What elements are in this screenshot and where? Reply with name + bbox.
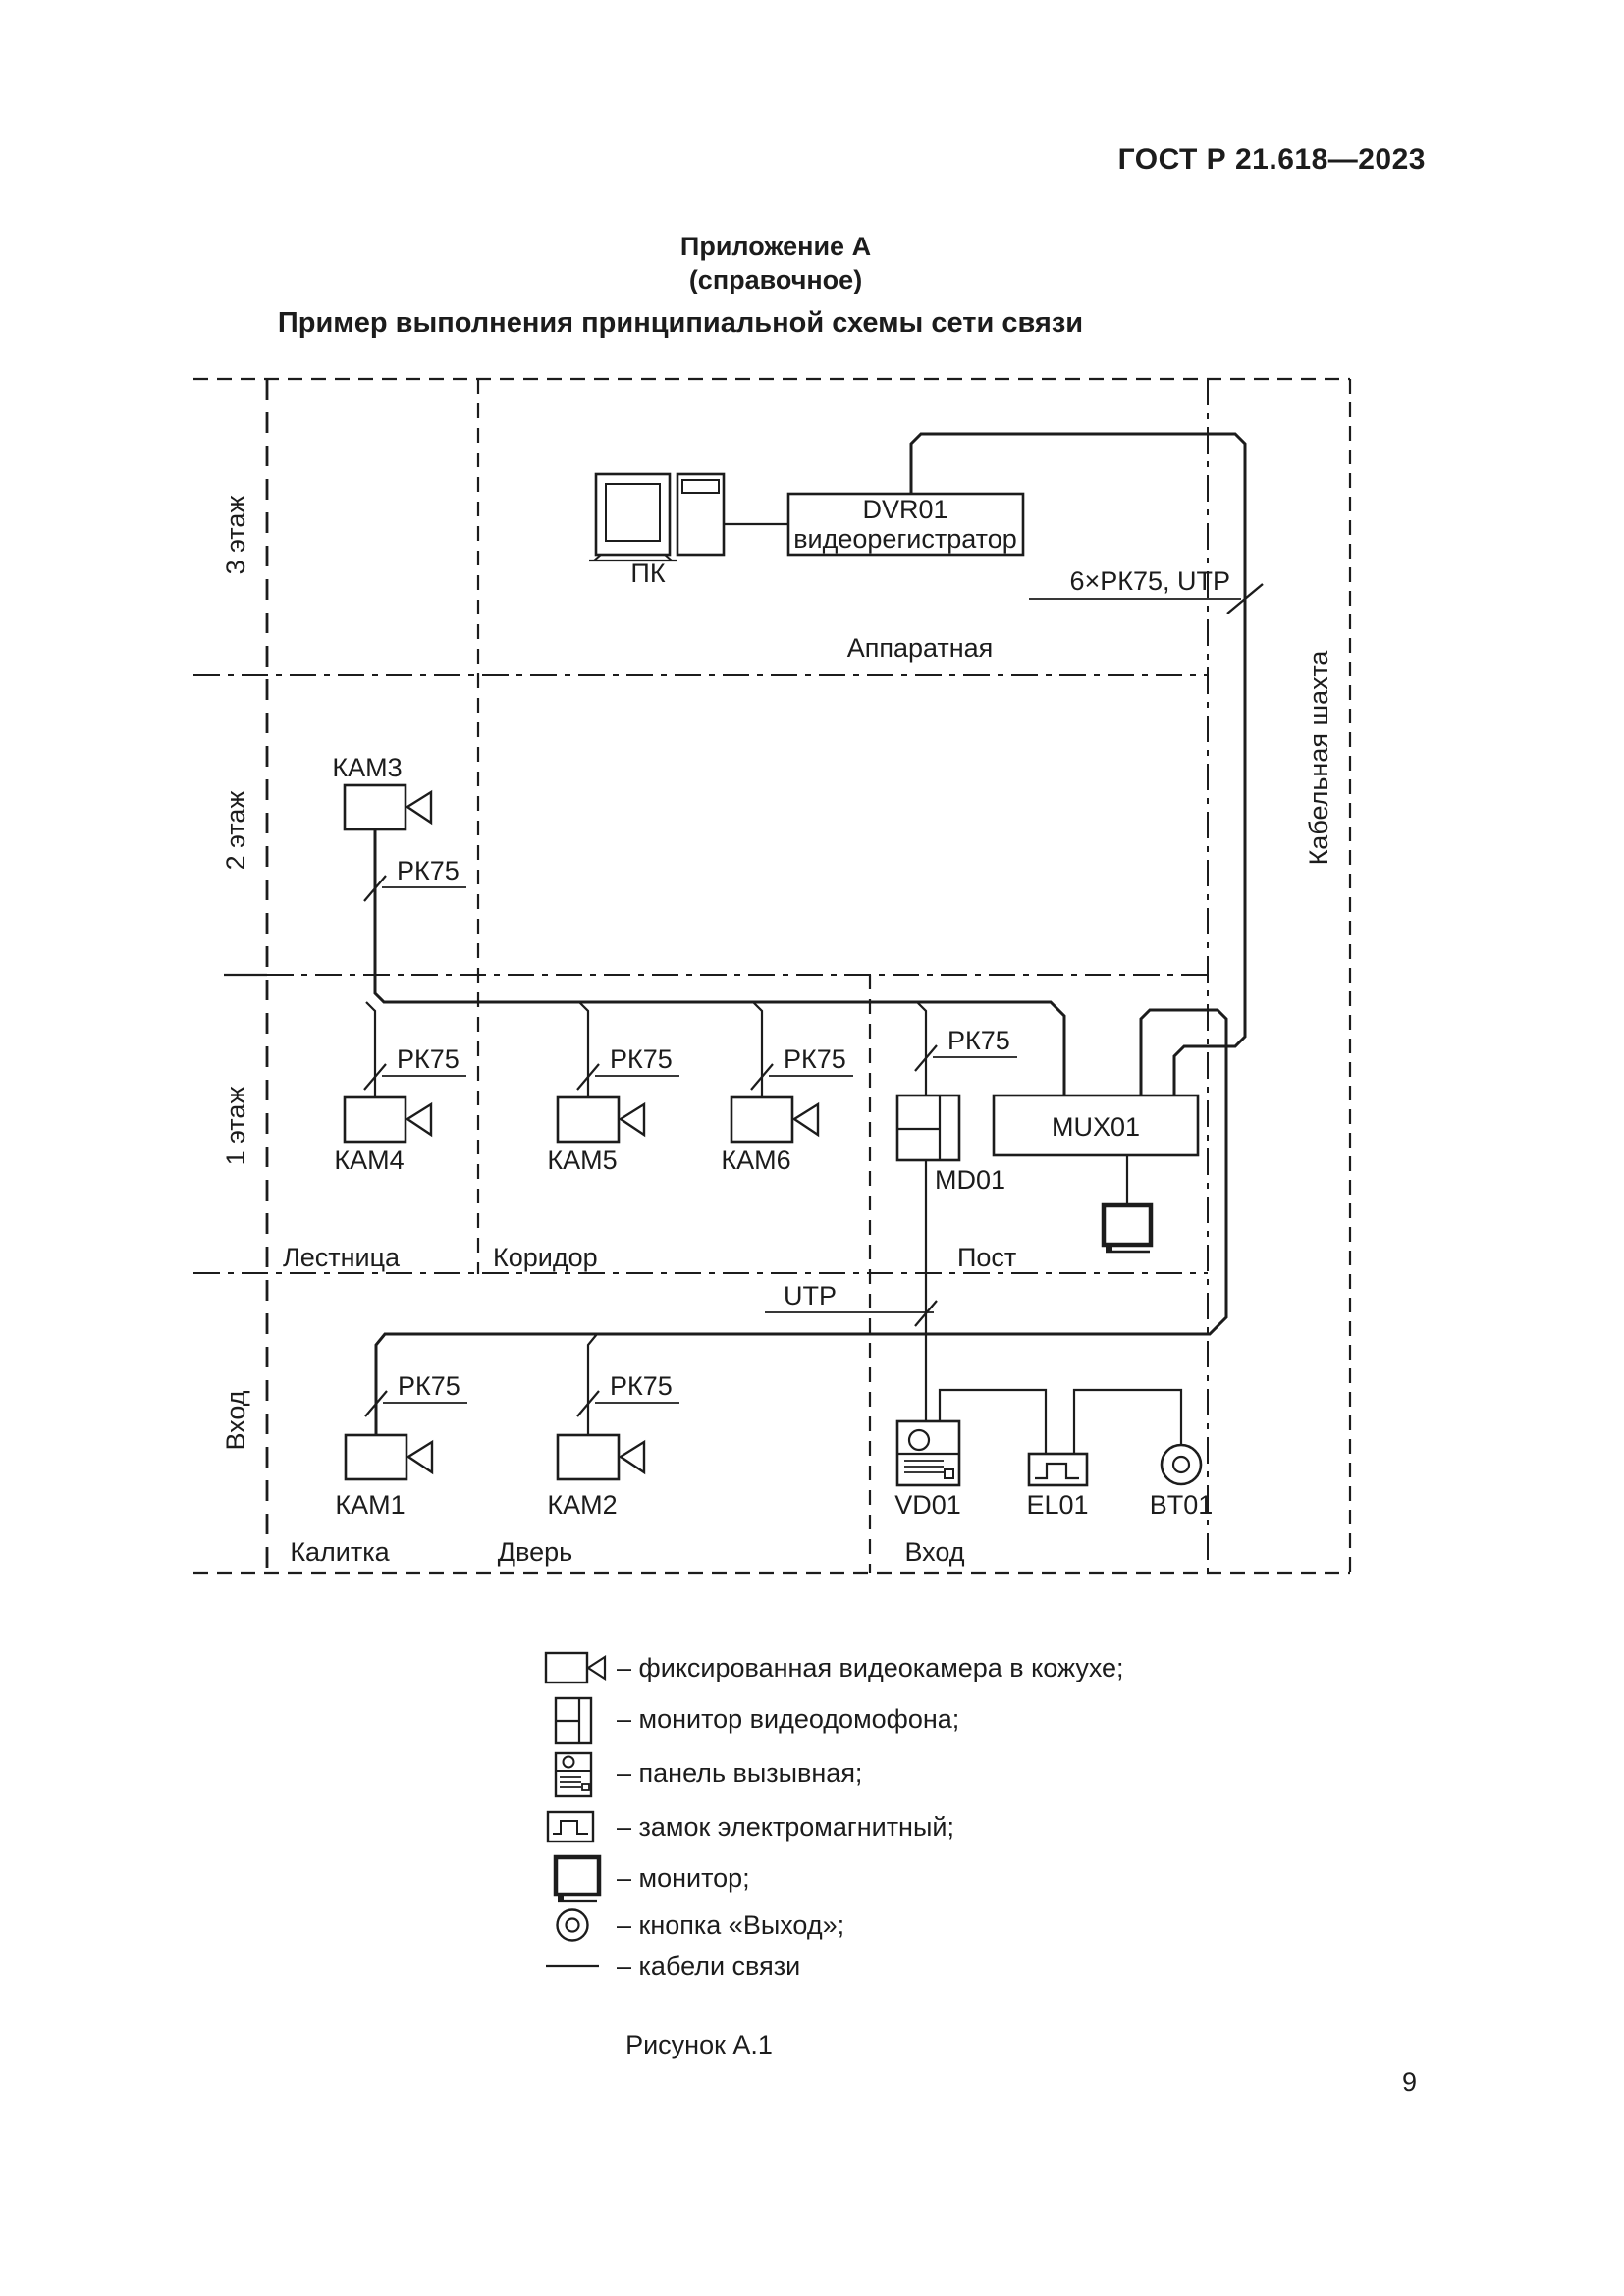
cable-label-rk75-kam6: РК75 (784, 1044, 846, 1074)
document-page: ГОСТ Р 21.618—2023 Приложение А (справоч… (0, 0, 1624, 2296)
legend-label-7: – кабели связи (617, 1951, 800, 1981)
dvr-name: DVR01 (862, 495, 947, 524)
cable-riser-kam2 (588, 1334, 597, 1435)
vd01-button (945, 1469, 953, 1478)
camera-kam2-icon (558, 1435, 644, 1479)
mux-label: MUX01 (1052, 1112, 1140, 1142)
md01-intercom-monitor-icon (897, 1095, 959, 1160)
camera-kam1-icon (346, 1435, 432, 1479)
legend-label-6: – кнопка «Выход»; (617, 1910, 844, 1940)
floor-label-entrance: Вход (221, 1390, 250, 1450)
bt01-inner (1173, 1457, 1189, 1472)
post-monitor-icon (1104, 1205, 1151, 1253)
intercom-monitor-icon (556, 1698, 591, 1743)
camera-kam5-icon (558, 1097, 644, 1142)
post-monitor-foot (1106, 1246, 1112, 1253)
legend-label-2: – монитор видеодомофона; (617, 1704, 959, 1734)
el01-lock-icon (1029, 1454, 1087, 1485)
pc-tower-slot (682, 480, 719, 493)
cable-el01-bt01 (1074, 1390, 1181, 1454)
legend-label-3: – панель вызывная; (617, 1758, 862, 1788)
cable-shaft-label: Кабельная шахта (1304, 650, 1333, 866)
room-door: Дверь (498, 1537, 572, 1567)
fixed-camera-icon (546, 1653, 605, 1682)
dvr-type: видеорегистратор (793, 524, 1017, 554)
room-gate: Калитка (290, 1537, 390, 1567)
camera-kam6-icon (731, 1097, 818, 1142)
kam3-label: КАМ3 (332, 753, 402, 782)
room-stairs: Лестница (283, 1243, 401, 1272)
pc-screen (606, 484, 660, 541)
room-entrance: Вход (904, 1537, 964, 1567)
el01-label: EL01 (1026, 1490, 1088, 1520)
electromagnetic-lock-icon (548, 1812, 593, 1842)
cable-label-rk75-kam4: РК75 (397, 1044, 460, 1074)
cable-label-trunk: 6×РК75, UTP (1069, 566, 1230, 596)
kam1-label: КАМ1 (335, 1490, 405, 1520)
camera-kam4-icon (345, 1097, 431, 1142)
kam4-label: КАМ4 (334, 1146, 404, 1175)
kam6-label: КАМ6 (721, 1146, 790, 1175)
kam5-label: КАМ5 (547, 1146, 617, 1175)
vd01-label: VD01 (894, 1490, 961, 1520)
el01-body (1029, 1454, 1087, 1485)
call-panel-icon (556, 1753, 591, 1796)
cable-label-rk75-kam2: РК75 (610, 1371, 673, 1401)
exit-button-icon (558, 1910, 588, 1941)
pc-icon (589, 474, 724, 561)
bt01-exit-button-icon (1162, 1445, 1201, 1484)
pc-label: ПК (630, 559, 665, 588)
cable-drop-md01 (917, 1002, 926, 1095)
kam2-label: КАМ2 (547, 1490, 617, 1520)
cable-label-rk75-kam5: РК75 (610, 1044, 673, 1074)
room-hardware: Аппаратная (847, 633, 994, 663)
room-post: Пост (957, 1243, 1016, 1272)
post-monitor-screen (1104, 1205, 1151, 1245)
md01-label: MD01 (935, 1165, 1005, 1195)
camera-kam3-icon (345, 785, 431, 829)
scheme-svg: РК75 РК75 РК75 РК75 РК75 РК75 РК75 UTP 6… (0, 0, 1624, 2296)
building-outline (193, 379, 1350, 1573)
legend-label-5: – монитор; (617, 1863, 750, 1893)
room-corridor: Коридор (493, 1243, 598, 1272)
monitor-icon (556, 1857, 599, 1901)
bt01-label: BT01 (1150, 1490, 1214, 1520)
vd01-speaker (909, 1430, 929, 1450)
legend-label-1: – фиксированная видеокамера в кожухе; (617, 1653, 1124, 1682)
floor-label-3: 3 этаж (221, 496, 250, 575)
cable-label-rk75-md01: РК75 (947, 1026, 1010, 1055)
vd01-call-panel-icon (897, 1421, 959, 1485)
cable-label-rk75-kam1: РК75 (398, 1371, 460, 1401)
legend: – фиксированная видеокамера в кожухе; – … (546, 1653, 1124, 1981)
cable-label-rk75-kam3: РК75 (397, 856, 460, 885)
floor-label-2: 2 этаж (221, 791, 250, 871)
legend-label-4: – замок электромагнитный; (617, 1812, 954, 1842)
floor-label-1: 1 этаж (221, 1087, 250, 1166)
cable-label-utp: UTP (784, 1281, 837, 1310)
